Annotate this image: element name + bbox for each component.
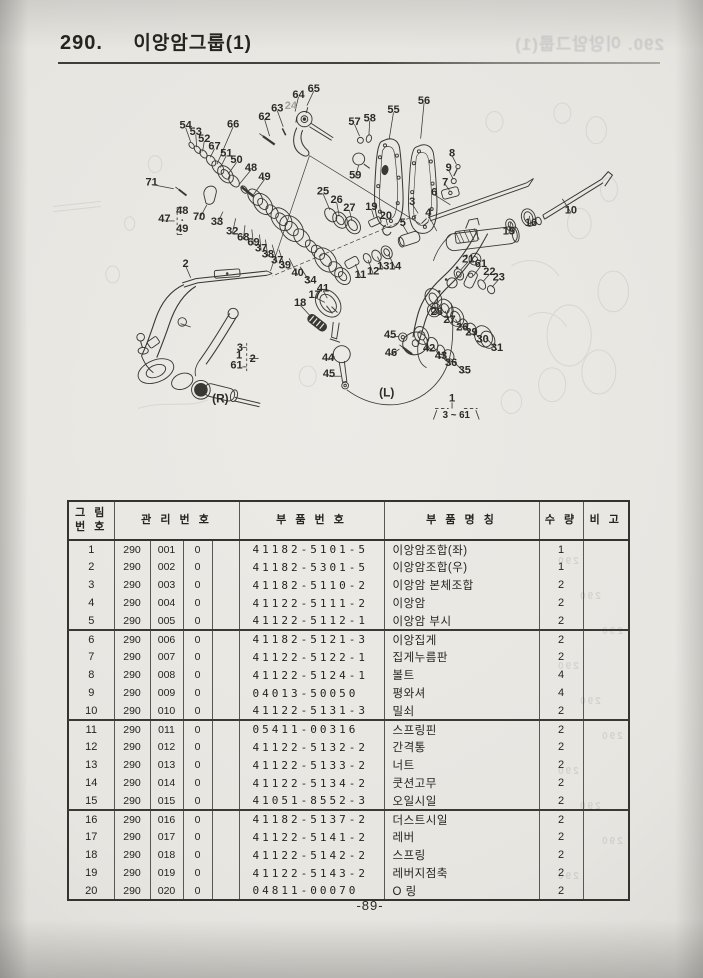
- diagram-callout-label: 26: [331, 194, 343, 206]
- cell-mgmt-1: 290: [114, 594, 150, 612]
- cell-mgmt-1: 290: [114, 666, 150, 684]
- cell-qty: 2: [539, 828, 583, 846]
- cell-qty: 2: [539, 648, 583, 666]
- cell-mgmt-4: [212, 738, 239, 756]
- cell-qty: 2: [539, 738, 583, 756]
- cell-mgmt-1: 290: [114, 720, 150, 738]
- diagram-callout-label: 7: [442, 176, 448, 188]
- cell-remarks: [583, 720, 629, 738]
- cell-part-no: 04013-50050: [239, 684, 384, 702]
- cell-part-name: 쿳션고무: [384, 774, 539, 792]
- bleed-through-smudges: [53, 103, 628, 414]
- diagram-callout-label: 55: [387, 104, 399, 116]
- diagram-callout-label: 46: [385, 347, 397, 359]
- table-row: 17290017041122-5141-2레버2: [68, 828, 629, 846]
- diagram-callout-label: 63: [271, 102, 283, 114]
- diagram-callout-label: 42: [423, 343, 435, 355]
- cell-part-no: 41122-5132-2: [239, 738, 384, 756]
- cell-mgmt-3: 0: [183, 702, 212, 720]
- cell-part-name: 오일시일: [384, 792, 539, 810]
- diagram-callout-label: 31: [491, 342, 503, 354]
- cell-part-no: 41122-5124-1: [239, 666, 384, 684]
- diagram-callout-label: 44: [322, 352, 335, 364]
- cell-mgmt-2: 013: [150, 756, 183, 774]
- cell-mgmt-3: 0: [183, 864, 212, 882]
- cell-part-no: 41122-5111-2: [239, 594, 384, 612]
- cell-qty: 2: [539, 702, 583, 720]
- diagram-callout-label: 16: [525, 217, 537, 229]
- table-row: 1290001041182-5101-5이앙암조합(좌)1: [68, 540, 629, 558]
- diagram-callout-label: 3: [409, 196, 415, 208]
- diagram-callout-label: 2: [183, 258, 189, 270]
- cell-mgmt-3: 0: [183, 882, 212, 900]
- cell-mgmt-1: 290: [114, 630, 150, 648]
- cell-mgmt-2: 001: [150, 540, 183, 558]
- cell-part-no: 41182-5301-5: [239, 558, 384, 576]
- cell-part-name: 집게누름판: [384, 648, 539, 666]
- cell-part-name: 레버: [384, 828, 539, 846]
- diagram-callout-label: 10: [565, 204, 577, 216]
- cell-mgmt-4: [212, 882, 239, 900]
- cell-mgmt-3: 0: [183, 558, 212, 576]
- cell-mgmt-3: 0: [183, 774, 212, 792]
- diagram-callout-label: 21: [462, 254, 474, 266]
- cell-part-no: 41182-5121-3: [239, 630, 384, 648]
- diagram-callout-label: 27: [443, 314, 455, 326]
- cell-remarks: [583, 882, 629, 900]
- cell-mgmt-4: [212, 864, 239, 882]
- cell-mgmt-1: 290: [114, 864, 150, 882]
- diagram-callout-label: 9: [446, 162, 452, 174]
- diagram-callout-label: 1: [449, 393, 455, 405]
- diagram-artwork: [134, 107, 612, 419]
- diagram-callout-label: 45: [384, 329, 396, 341]
- cell-part-name: 스프링핀: [384, 720, 539, 738]
- cell-mgmt-3: 0: [183, 594, 212, 612]
- cell-mgmt-1: 290: [114, 576, 150, 594]
- cell-part-no: 41122-5131-3: [239, 702, 384, 720]
- cell-qty: 2: [539, 594, 583, 612]
- cell-part-name: 이앙암조합(우): [384, 558, 539, 576]
- cell-mgmt-2: 015: [150, 792, 183, 810]
- cell-remarks: [583, 828, 629, 846]
- cell-qty: 2: [539, 774, 583, 792]
- cell-part-no: 41051-8552-3: [239, 792, 384, 810]
- table-row: 6290006041182-5121-3이앙집게2: [68, 630, 629, 648]
- table-row: 18290018041122-5142-2스프링2: [68, 846, 629, 864]
- cell-mgmt-3: 0: [183, 810, 212, 828]
- diagram-callout-label: 70: [193, 211, 205, 223]
- cell-mgmt-2: 005: [150, 612, 183, 630]
- cell-mgmt-3: 0: [183, 756, 212, 774]
- cell-remarks: [583, 774, 629, 792]
- cell-remarks: [583, 576, 629, 594]
- diagram-callout-label: 34: [304, 275, 317, 287]
- cell-fig-no: 11: [68, 720, 114, 738]
- cell-mgmt-2: 020: [150, 882, 183, 900]
- cell-remarks: [583, 558, 629, 576]
- cell-part-name: 이앙집게: [384, 630, 539, 648]
- diagram-callout-label: 13: [377, 260, 389, 272]
- diagram-callout-label: 65: [308, 83, 320, 95]
- diagram-callout-label: 17: [308, 289, 320, 301]
- table-row: 14290014041122-5134-2쿳션고무2: [68, 774, 629, 792]
- cell-part-name: 이앙암 부시: [384, 612, 539, 630]
- cell-remarks: [583, 792, 629, 810]
- page-number: -89-: [330, 898, 410, 913]
- cell-remarks: [583, 864, 629, 882]
- cell-fig-no: 7: [68, 648, 114, 666]
- cell-mgmt-4: [212, 576, 239, 594]
- cell-mgmt-1: 290: [114, 612, 150, 630]
- parts-table-body: 1290001041182-5101-5이앙암조합(좌)122900020411…: [68, 540, 629, 900]
- cell-qty: 2: [539, 720, 583, 738]
- cell-part-no: 41182-5110-2: [239, 576, 384, 594]
- cell-mgmt-2: 006: [150, 630, 183, 648]
- cell-mgmt-4: [212, 630, 239, 648]
- cell-remarks: [583, 630, 629, 648]
- cell-mgmt-2: 017: [150, 828, 183, 846]
- diagram-callout-label: 48: [176, 205, 188, 217]
- diagram-callout-label: 4: [425, 207, 432, 219]
- diagram-callout-label: 6: [431, 186, 437, 198]
- cell-fig-no: 9: [68, 684, 114, 702]
- diagram-callout-label: 59: [349, 170, 361, 182]
- cell-mgmt-4: [212, 720, 239, 738]
- table-row: 11290011005411-00316스프링핀2: [68, 720, 629, 738]
- cell-remarks: [583, 684, 629, 702]
- cell-fig-no: 6: [68, 630, 114, 648]
- diagram-callout-label: 71: [146, 176, 158, 188]
- section-number: 290.: [60, 32, 103, 54]
- table-header-row: 그 림 번 호 관 리 번 호 부 품 번 호 부 품 명 칭 수 량 비 고: [68, 501, 629, 540]
- cell-mgmt-4: [212, 558, 239, 576]
- cell-fig-no: 1: [68, 540, 114, 558]
- page-title: 이앙암그룹(1): [133, 33, 252, 54]
- cell-mgmt-3: 0: [183, 666, 212, 684]
- cell-mgmt-3: 0: [183, 792, 212, 810]
- cell-mgmt-4: [212, 684, 239, 702]
- exploded-parts-diagram: 6564632462575855565989767154535266675150…: [0, 75, 703, 495]
- col-header-qty: 수 량: [539, 501, 583, 540]
- diagram-callout-label: 35: [459, 365, 471, 377]
- cell-mgmt-4: [212, 540, 239, 558]
- cell-remarks: [583, 540, 629, 558]
- cell-remarks: [583, 594, 629, 612]
- cell-qty: 2: [539, 630, 583, 648]
- cell-fig-no: 2: [68, 558, 114, 576]
- cell-part-name: 밀쇠: [384, 702, 539, 720]
- diagram-callout-label: 30: [476, 333, 488, 345]
- cell-mgmt-1: 290: [114, 828, 150, 846]
- cell-mgmt-4: [212, 756, 239, 774]
- diagram-callout-label: 57: [348, 116, 360, 128]
- diagram-callout-label: 50: [230, 154, 242, 166]
- cell-mgmt-1: 290: [114, 558, 150, 576]
- bleed-through-title-ghost: 290. 이앙암그룹(1): [438, 30, 664, 55]
- cell-part-name: 이앙암: [384, 594, 539, 612]
- cell-fig-no: 5: [68, 612, 114, 630]
- table-row: 15290015041051-8552-3오일시일2: [68, 792, 629, 810]
- cell-mgmt-2: 009: [150, 684, 183, 702]
- header-underline: [58, 62, 660, 64]
- cell-mgmt-4: [212, 702, 239, 720]
- table-row: 3290003041182-5110-2이앙암 본체조합2: [68, 576, 629, 594]
- cell-mgmt-2: 010: [150, 702, 183, 720]
- cell-mgmt-1: 290: [114, 648, 150, 666]
- cell-part-no: 41182-5137-2: [239, 810, 384, 828]
- diagram-callout-label: 27: [343, 202, 355, 214]
- cell-fig-no: 14: [68, 774, 114, 792]
- cell-part-no: 41122-5141-2: [239, 828, 384, 846]
- table-row: 4290004041122-5111-2이앙암2: [68, 594, 629, 612]
- diagram-callout-label: 28: [431, 306, 443, 318]
- cell-mgmt-2: 008: [150, 666, 183, 684]
- cell-fig-no: 4: [68, 594, 114, 612]
- cell-qty: 4: [539, 684, 583, 702]
- cell-qty: 4: [539, 666, 583, 684]
- scanned-catalog-page: { "page": { "section_number": "290.", "t…: [0, 0, 703, 978]
- table-row: 12290012041122-5132-2간격통2: [68, 738, 629, 756]
- cell-mgmt-1: 290: [114, 756, 150, 774]
- diagram-callout-label: 47: [158, 213, 170, 225]
- cell-mgmt-2: 018: [150, 846, 183, 864]
- cell-qty: 1: [539, 558, 583, 576]
- col-header-part-no: 부 품 번 호: [239, 501, 384, 540]
- diagram-callouts: 6564632462575855565989767154535266675150…: [146, 83, 577, 421]
- table-row: 13290013041122-5133-2너트2: [68, 756, 629, 774]
- cell-fig-no: 18: [68, 846, 114, 864]
- cell-mgmt-1: 290: [114, 792, 150, 810]
- cell-mgmt-2: 011: [150, 720, 183, 738]
- cell-remarks: [583, 738, 629, 756]
- col-header-part-name: 부 품 명 칭: [384, 501, 539, 540]
- cell-qty: 2: [539, 864, 583, 882]
- cell-part-no: 41122-5143-2: [239, 864, 384, 882]
- cell-part-name: 레버지점축: [384, 864, 539, 882]
- cell-mgmt-3: 0: [183, 612, 212, 630]
- diagram-callout-label: 56: [418, 95, 430, 107]
- diagram-callout-label: 61: [230, 360, 242, 372]
- cell-mgmt-3: 0: [183, 828, 212, 846]
- cell-mgmt-3: 0: [183, 576, 212, 594]
- cell-mgmt-4: [212, 666, 239, 684]
- cell-qty: 2: [539, 882, 583, 900]
- cell-fig-no: 17: [68, 828, 114, 846]
- diagram-callout-label: (L): [379, 386, 394, 400]
- cell-part-name: 이앙암 본체조합: [384, 576, 539, 594]
- cell-part-name: 너트: [384, 756, 539, 774]
- cell-fig-no: 20: [68, 882, 114, 900]
- cell-part-no: 41122-5122-1: [239, 648, 384, 666]
- diagram-callout-label: 62: [258, 111, 270, 123]
- table-row: 19290019041122-5143-2레버지점축2: [68, 864, 629, 882]
- table-row: 16290016041182-5137-2더스트시일2: [68, 810, 629, 828]
- cell-qty: 2: [539, 612, 583, 630]
- diagram-callout-label: 33: [211, 216, 223, 228]
- table-row: 2290002041182-5301-5이앙암조합(우)1: [68, 558, 629, 576]
- diagram-callout-label: 24: [285, 100, 298, 112]
- cell-mgmt-1: 290: [114, 846, 150, 864]
- cell-fig-no: 15: [68, 792, 114, 810]
- cell-mgmt-1: 290: [114, 702, 150, 720]
- cell-mgmt-3: 0: [183, 648, 212, 666]
- cell-mgmt-4: [212, 846, 239, 864]
- cell-part-name: 볼트: [384, 666, 539, 684]
- cell-remarks: [583, 846, 629, 864]
- cell-part-no: 41122-5142-2: [239, 846, 384, 864]
- diagram-callout-label: 11: [355, 269, 367, 281]
- diagram-callout-label: 39: [279, 259, 291, 271]
- cell-mgmt-4: [212, 810, 239, 828]
- table-row: 5290005041122-5112-1이앙암 부시2: [68, 612, 629, 630]
- cell-mgmt-2: 007: [150, 648, 183, 666]
- diagram-callout-label: 36: [445, 357, 457, 369]
- diagram-callout-label: 19: [365, 201, 377, 213]
- cell-mgmt-4: [212, 648, 239, 666]
- diagram-callout-label: 49: [176, 223, 188, 235]
- cell-mgmt-4: [212, 774, 239, 792]
- cell-mgmt-2: 014: [150, 774, 183, 792]
- diagram-callout-label: 48: [245, 162, 257, 174]
- cell-part-name: 더스트시일: [384, 810, 539, 828]
- cell-part-name: 이앙암조합(좌): [384, 540, 539, 558]
- cell-part-name: 평와셔: [384, 684, 539, 702]
- cell-remarks: [583, 666, 629, 684]
- table-row: 10290010041122-5131-3밀쇠2: [68, 702, 629, 720]
- diagram-callout-label: 45: [323, 368, 335, 380]
- diagram-callout-label: 58: [364, 113, 376, 125]
- cell-part-name: 스프링: [384, 846, 539, 864]
- diagram-callout-label: 5: [400, 217, 406, 229]
- cell-qty: 1: [539, 540, 583, 558]
- cell-mgmt-2: 002: [150, 558, 183, 576]
- cell-mgmt-1: 290: [114, 882, 150, 900]
- cell-mgmt-4: [212, 792, 239, 810]
- diagram-callout-label: 15: [503, 226, 515, 238]
- cell-fig-no: 12: [68, 738, 114, 756]
- cell-mgmt-1: 290: [114, 540, 150, 558]
- cell-fig-no: 16: [68, 810, 114, 828]
- diagram-callout-label: 3 ~ 61: [443, 410, 471, 421]
- cell-mgmt-3: 0: [183, 684, 212, 702]
- parts-table: 그 림 번 호 관 리 번 호 부 품 번 호 부 품 명 칭 수 량 비 고 …: [67, 500, 630, 901]
- diagram-callout-label: 49: [258, 171, 270, 183]
- cell-qty: 2: [539, 576, 583, 594]
- cell-mgmt-3: 0: [183, 630, 212, 648]
- cell-qty: 2: [539, 846, 583, 864]
- cell-mgmt-2: 012: [150, 738, 183, 756]
- table-row: 8290008041122-5124-1볼트4: [68, 666, 629, 684]
- cell-remarks: [583, 702, 629, 720]
- cell-mgmt-4: [212, 594, 239, 612]
- cell-mgmt-1: 290: [114, 684, 150, 702]
- col-header-fig-no: 그 림 번 호: [68, 501, 114, 540]
- diagram-callout-label: 67: [208, 141, 220, 153]
- cell-remarks: [583, 612, 629, 630]
- cell-fig-no: 19: [68, 864, 114, 882]
- diagram-callout-label: 14: [389, 260, 402, 272]
- cell-fig-no: 8: [68, 666, 114, 684]
- cell-remarks: [583, 756, 629, 774]
- cell-mgmt-3: 0: [183, 540, 212, 558]
- table-row: 9290009004013-50050평와셔4: [68, 684, 629, 702]
- diagram-callout-label: 40: [291, 267, 303, 279]
- cell-remarks: [583, 648, 629, 666]
- diagram-callout-label: 20: [380, 210, 392, 222]
- cell-mgmt-4: [212, 612, 239, 630]
- diagram-callout-label: 2: [250, 353, 256, 365]
- cell-part-no: 41182-5101-5: [239, 540, 384, 558]
- cell-fig-no: 10: [68, 702, 114, 720]
- cell-fig-no: 3: [68, 576, 114, 594]
- cell-remarks: [583, 810, 629, 828]
- diagram-callout-label: 23: [493, 271, 505, 283]
- cell-part-no: 05411-00316: [239, 720, 384, 738]
- col-header-remarks: 비 고: [583, 501, 629, 540]
- cell-fig-no: 13: [68, 756, 114, 774]
- cell-mgmt-3: 0: [183, 846, 212, 864]
- cell-qty: 2: [539, 756, 583, 774]
- diagram-callout-label: 8: [449, 147, 455, 159]
- diagram-callout-label: 18: [294, 297, 306, 309]
- diagram-callout-label: 66: [227, 119, 239, 131]
- cell-mgmt-1: 290: [114, 810, 150, 828]
- cell-mgmt-1: 290: [114, 774, 150, 792]
- col-header-mgmt-no: 관 리 번 호: [114, 501, 239, 540]
- cell-qty: 2: [539, 810, 583, 828]
- table-row: 7290007041122-5122-1집게누름판2: [68, 648, 629, 666]
- diagram-callout-label: (R): [212, 392, 229, 406]
- cell-mgmt-3: 0: [183, 738, 212, 756]
- cell-mgmt-4: [212, 828, 239, 846]
- cell-mgmt-2: 004: [150, 594, 183, 612]
- cell-mgmt-2: 003: [150, 576, 183, 594]
- cell-qty: 2: [539, 792, 583, 810]
- cell-part-name: 간격통: [384, 738, 539, 756]
- cell-mgmt-2: 019: [150, 864, 183, 882]
- cell-mgmt-2: 016: [150, 810, 183, 828]
- cell-part-no: 41122-5112-1: [239, 612, 384, 630]
- cell-mgmt-3: 0: [183, 720, 212, 738]
- page-header: 290. 이앙암그룹(1): [60, 28, 252, 55]
- cell-part-no: 41122-5134-2: [239, 774, 384, 792]
- diagram-callout-label: 25: [317, 186, 329, 198]
- cell-mgmt-1: 290: [114, 738, 150, 756]
- cell-part-no: 41122-5133-2: [239, 756, 384, 774]
